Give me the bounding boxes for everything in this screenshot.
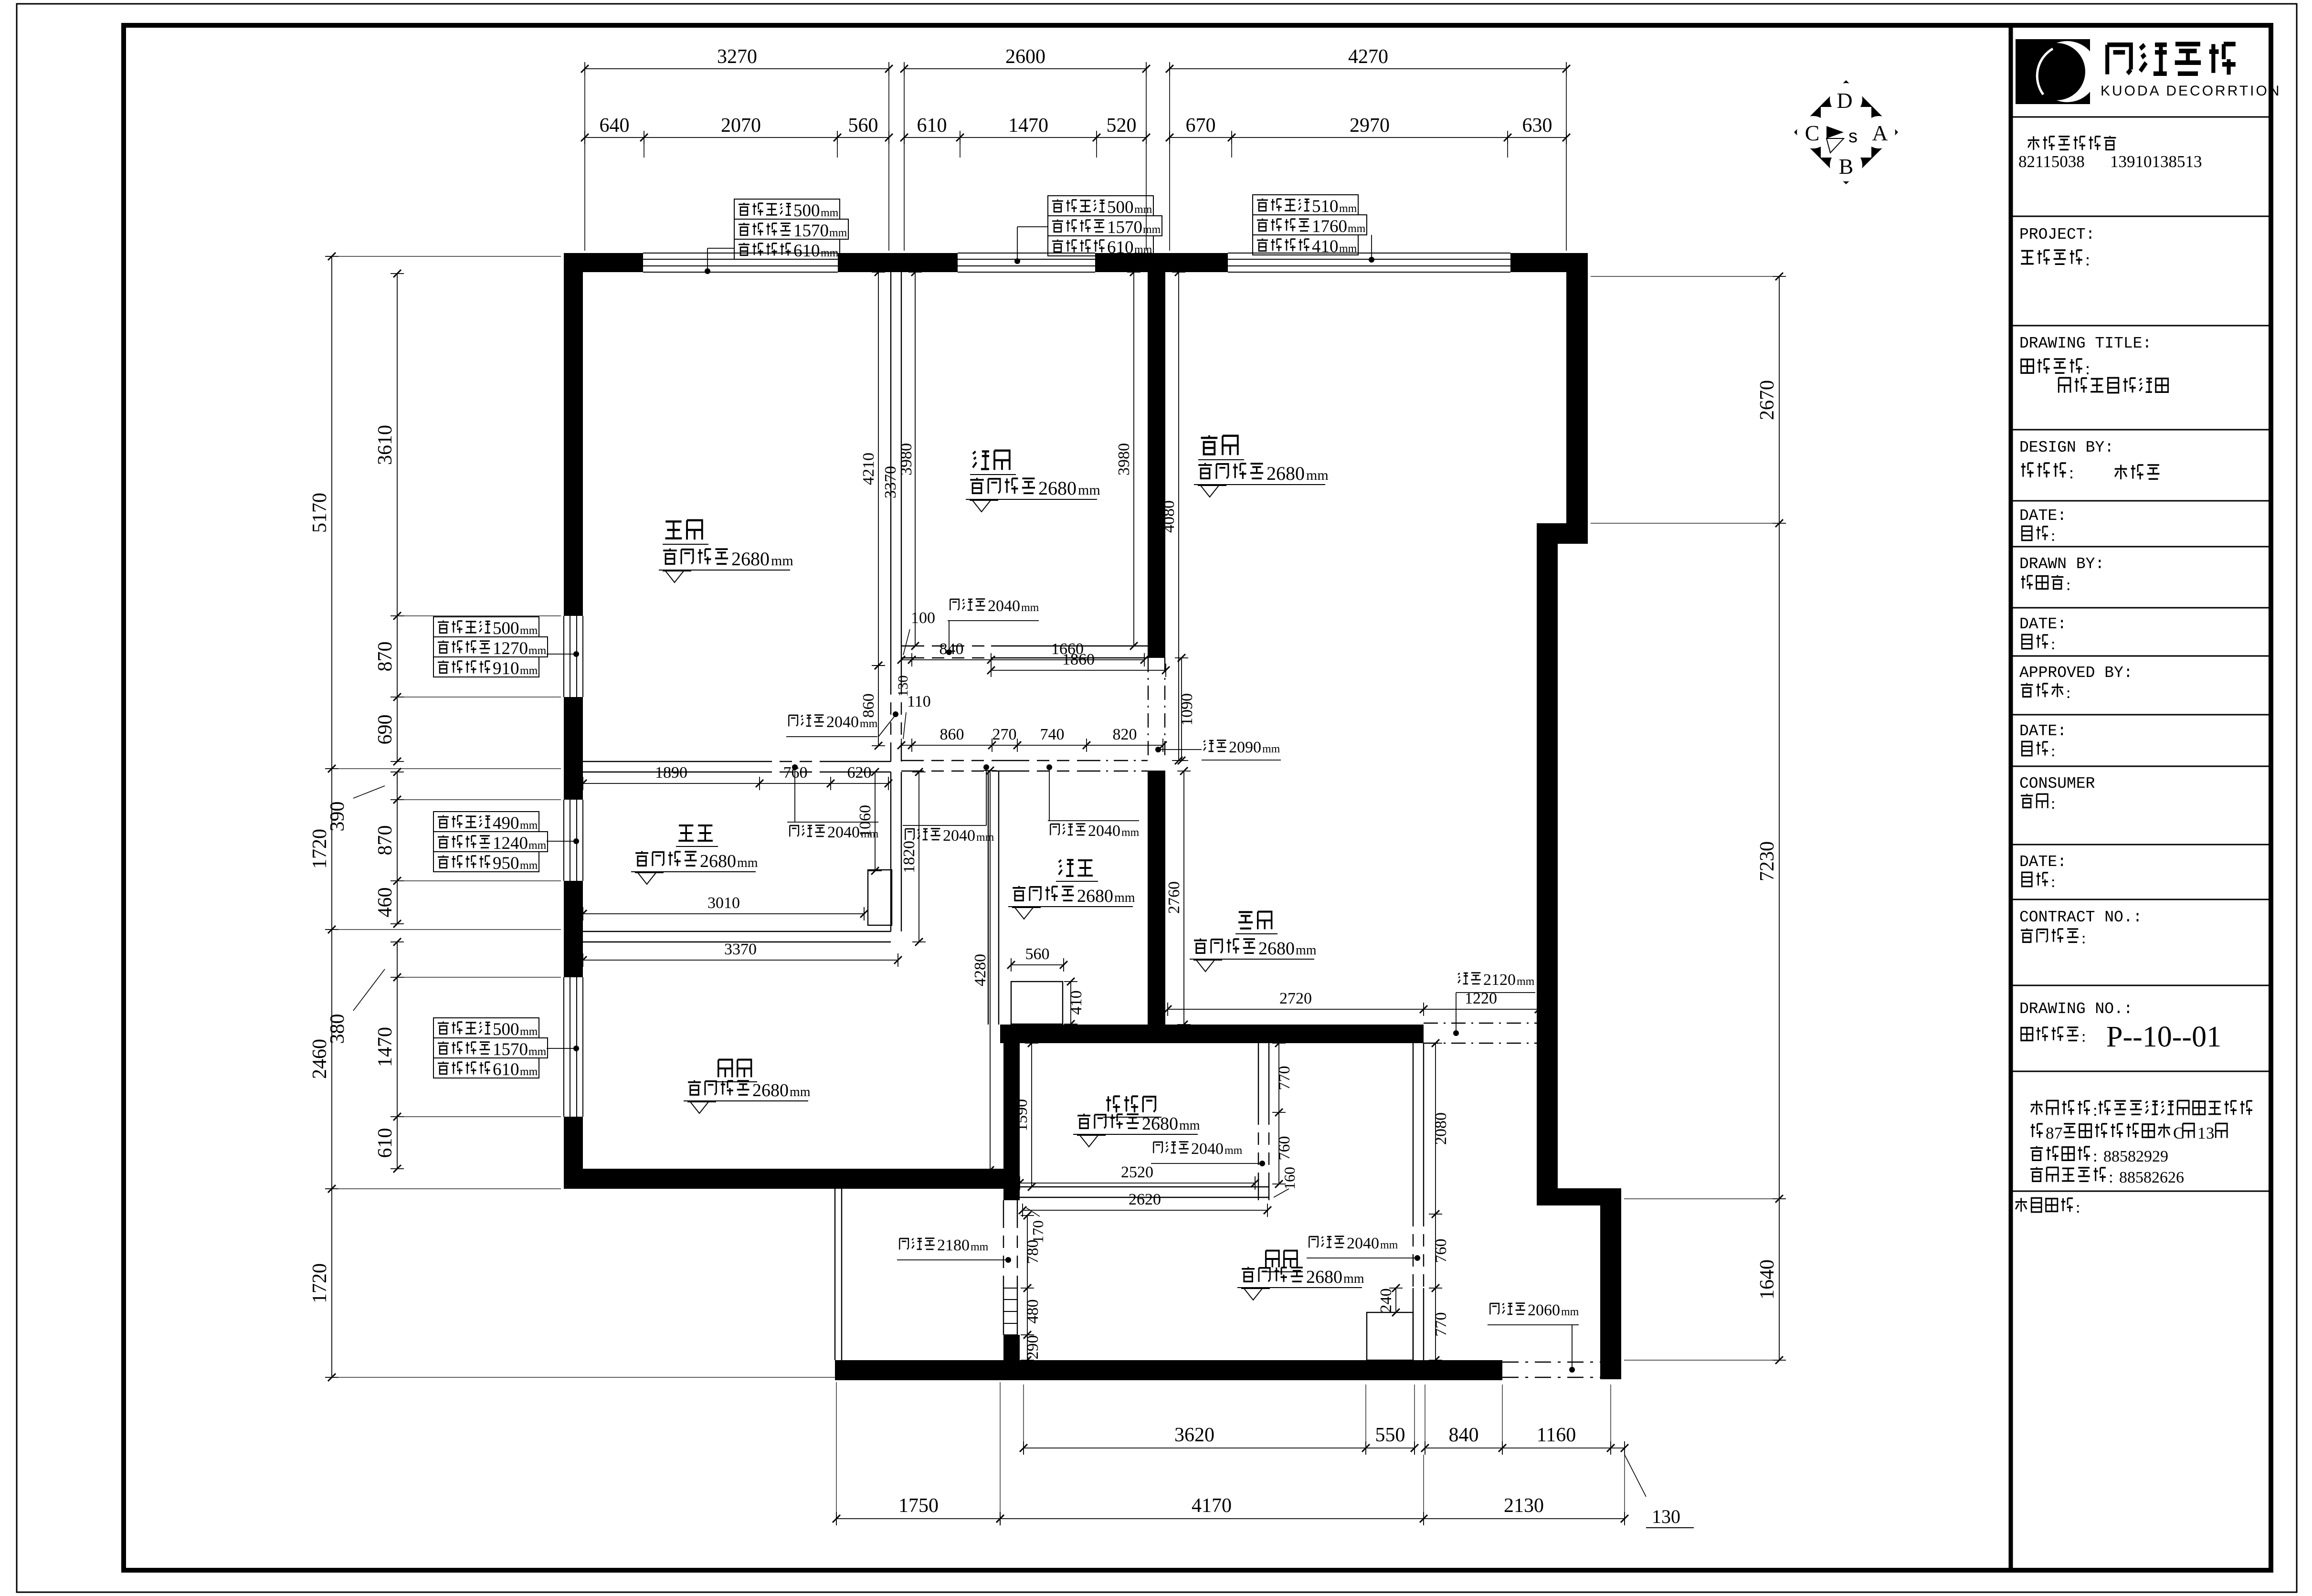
svg-text:C: C [1805, 121, 1820, 145]
svg-text:610: 610 [1107, 238, 1134, 257]
svg-text:1820: 1820 [900, 841, 918, 873]
svg-text:100: 100 [911, 609, 935, 627]
svg-text:7230: 7230 [1756, 841, 1778, 881]
svg-text:7: 7 [2054, 1124, 2063, 1142]
svg-text:mm: mm [520, 859, 538, 872]
svg-text:240: 240 [1377, 1289, 1395, 1313]
svg-text:620: 620 [847, 764, 872, 782]
svg-text:480: 480 [1024, 1300, 1042, 1324]
svg-text:mm: mm [520, 819, 538, 832]
svg-text:520: 520 [1107, 115, 1137, 137]
svg-text:840: 840 [940, 640, 964, 658]
svg-text:mm: mm [976, 831, 994, 844]
svg-text:mm: mm [1134, 203, 1152, 216]
svg-text:740: 740 [1040, 726, 1065, 743]
svg-text:690: 690 [374, 715, 396, 745]
svg-text:1090: 1090 [1178, 693, 1196, 726]
svg-text:2040: 2040 [943, 827, 975, 845]
svg-text:820: 820 [1113, 726, 1137, 743]
svg-text:mm: mm [528, 839, 547, 852]
svg-text:mm: mm [1114, 890, 1135, 905]
svg-text::: : [2093, 1147, 2098, 1165]
svg-text:270: 270 [992, 726, 1017, 743]
svg-text:1640: 1640 [1756, 1259, 1778, 1300]
svg-text::: : [2069, 463, 2074, 482]
svg-text:1890: 1890 [655, 764, 687, 782]
svg-text:13910138513: 13910138513 [2110, 152, 2202, 171]
svg-text:mm: mm [1339, 202, 1357, 215]
svg-text:2680: 2680 [1258, 939, 1295, 959]
svg-text:2760: 2760 [1165, 881, 1183, 914]
svg-text:88582626: 88582626 [2119, 1169, 2184, 1186]
svg-text:3620: 3620 [1174, 1424, 1214, 1446]
svg-text:mm: mm [520, 1025, 538, 1038]
svg-text:160: 160 [1281, 1167, 1298, 1190]
svg-text:500: 500 [793, 201, 820, 221]
svg-text:380: 380 [327, 1014, 348, 1044]
svg-text::: : [2081, 930, 2086, 947]
svg-text::: : [2085, 250, 2090, 269]
svg-text:CONTRACT NO.:: CONTRACT NO.: [2019, 909, 2142, 926]
svg-text:1570: 1570 [793, 221, 829, 241]
svg-text:mm: mm [1262, 743, 1280, 755]
svg-text:550: 550 [1375, 1424, 1405, 1446]
svg-text:510: 510 [1312, 197, 1339, 216]
svg-text::: : [2051, 527, 2055, 545]
svg-text:B: B [1839, 154, 1854, 179]
svg-text:870: 870 [374, 825, 396, 856]
svg-text:DATE:: DATE: [2019, 853, 2067, 871]
svg-text:APPROVED BY:: APPROVED BY: [2019, 664, 2133, 682]
svg-text:4270: 4270 [1348, 46, 1388, 68]
svg-text:560: 560 [848, 115, 878, 137]
svg-text:3: 3 [2206, 1124, 2215, 1142]
svg-text:410: 410 [1067, 991, 1085, 1015]
svg-text:D: D [1837, 88, 1852, 113]
svg-text:mm: mm [1306, 467, 1329, 483]
svg-text:2040: 2040 [1347, 1235, 1379, 1252]
svg-text:mm: mm [1296, 943, 1317, 958]
svg-text:760: 760 [1432, 1239, 1450, 1263]
svg-text:610: 610 [374, 1128, 396, 1158]
svg-text:2520: 2520 [1121, 1163, 1153, 1181]
svg-text:1750: 1750 [898, 1495, 939, 1517]
svg-text:2040: 2040 [1191, 1140, 1224, 1158]
svg-text:mm: mm [1339, 243, 1357, 255]
svg-text:2680: 2680 [1306, 1267, 1342, 1287]
svg-text:500: 500 [1107, 198, 1134, 217]
svg-text:2680: 2680 [1142, 1114, 1178, 1134]
svg-text:mm: mm [520, 624, 538, 637]
svg-text:3980: 3980 [897, 443, 915, 476]
svg-text:1570: 1570 [1107, 218, 1142, 237]
svg-text:PROJECT:: PROJECT: [2019, 226, 2095, 243]
svg-text:490: 490 [493, 814, 519, 833]
svg-text:2720: 2720 [1279, 990, 1312, 1007]
svg-text:88582929: 88582929 [2103, 1148, 2168, 1165]
svg-text:560: 560 [1025, 945, 1050, 963]
svg-text:mm: mm [1134, 243, 1152, 256]
svg-text:mm: mm [790, 1085, 811, 1099]
svg-text:2040: 2040 [827, 824, 860, 841]
svg-text:2680: 2680 [1038, 477, 1077, 499]
svg-text:P--10--01: P--10--01 [2106, 1021, 2221, 1053]
svg-text:2080: 2080 [1432, 1112, 1450, 1145]
svg-text:950: 950 [493, 854, 519, 873]
svg-text:2130: 2130 [1504, 1495, 1544, 1517]
svg-text:mm: mm [528, 645, 547, 657]
svg-text:460: 460 [374, 888, 396, 918]
svg-text:1590: 1590 [1013, 1099, 1031, 1131]
svg-text::: : [2051, 635, 2055, 653]
svg-text:4080: 4080 [1160, 500, 1178, 533]
svg-text:mm: mm [1078, 482, 1100, 498]
svg-text:3370: 3370 [724, 941, 757, 958]
svg-text:mm: mm [1225, 1144, 1243, 1157]
svg-text:2040: 2040 [988, 597, 1020, 615]
svg-text:670: 670 [1186, 115, 1216, 137]
svg-text::: : [2066, 576, 2070, 594]
svg-text:KUODA DECORRTION: KUODA DECORRTION [2101, 83, 2281, 99]
svg-text::: : [2081, 1028, 2086, 1046]
svg-text:DRAWING NO.:: DRAWING NO.: [2019, 1000, 2133, 1018]
svg-text:1240: 1240 [493, 834, 528, 853]
svg-text:2600: 2600 [1005, 46, 1045, 68]
svg-text:mm: mm [821, 247, 839, 259]
svg-text:840: 840 [1449, 1424, 1479, 1446]
svg-text:4280: 4280 [971, 954, 989, 986]
svg-text:2970: 2970 [1350, 115, 1390, 137]
svg-text:3370: 3370 [882, 466, 899, 498]
svg-text:2120: 2120 [1483, 971, 1516, 989]
svg-text:1270: 1270 [493, 639, 528, 658]
svg-text:mm: mm [861, 828, 879, 840]
svg-text:2460: 2460 [309, 1039, 331, 1079]
svg-text:mm: mm [1179, 1118, 1200, 1133]
svg-text:2040: 2040 [826, 713, 859, 731]
svg-text:mm: mm [860, 718, 878, 730]
svg-text:1470: 1470 [374, 1027, 396, 1067]
svg-text:770: 770 [1432, 1312, 1450, 1337]
svg-text:DATE:: DATE: [2019, 615, 2067, 633]
svg-text:mm: mm [1348, 222, 1366, 235]
svg-text:1720: 1720 [309, 1263, 331, 1303]
svg-text:1760: 1760 [1312, 217, 1347, 236]
svg-text:mm: mm [528, 1046, 547, 1058]
svg-text:DATE:: DATE: [2019, 507, 2067, 525]
svg-text:780: 780 [1024, 1240, 1042, 1264]
svg-text::: : [2066, 684, 2070, 702]
svg-text:130: 130 [1652, 1506, 1680, 1527]
svg-text::: : [2051, 742, 2055, 760]
svg-text:630: 630 [1522, 115, 1552, 137]
svg-text:1570: 1570 [493, 1040, 528, 1059]
svg-text:DESIGN BY:: DESIGN BY: [2019, 439, 2114, 456]
svg-text:2680: 2680 [700, 851, 736, 871]
svg-text:2090: 2090 [1229, 739, 1261, 756]
svg-text:82115038: 82115038 [2018, 152, 2085, 171]
svg-text:2620: 2620 [1129, 1191, 1161, 1208]
svg-text:mm: mm [829, 227, 847, 239]
svg-text:s: s [1848, 127, 1858, 147]
svg-text::: : [2051, 795, 2055, 813]
svg-text:1470: 1470 [1008, 115, 1048, 137]
svg-text:1720: 1720 [309, 829, 331, 869]
svg-text:1860: 1860 [1062, 651, 1095, 668]
svg-text:610: 610 [793, 241, 820, 261]
svg-text:mm: mm [1021, 602, 1039, 614]
svg-text:mm: mm [1517, 975, 1535, 988]
svg-text:mm: mm [1343, 1271, 1364, 1286]
svg-text::: : [2109, 1168, 2113, 1186]
svg-text:A: A [1872, 121, 1888, 145]
svg-text::: : [2085, 359, 2090, 378]
svg-text:290: 290 [1024, 1335, 1042, 1360]
svg-text:870: 870 [374, 642, 396, 672]
svg-text:mm: mm [771, 553, 793, 569]
svg-text:2680: 2680 [1267, 463, 1305, 484]
svg-text:1: 1 [2197, 1124, 2206, 1142]
svg-text:2040: 2040 [1088, 822, 1120, 840]
svg-text:mm: mm [737, 856, 758, 870]
svg-text:mm: mm [520, 1066, 538, 1078]
svg-text:860: 860 [860, 694, 877, 718]
svg-text:130: 130 [895, 676, 911, 697]
svg-text:mm: mm [1143, 223, 1161, 236]
svg-text::: : [2076, 1199, 2080, 1216]
svg-text:770: 770 [1276, 1066, 1293, 1090]
svg-text:910: 910 [493, 659, 519, 678]
svg-text:mm: mm [1121, 826, 1140, 839]
svg-text:2680: 2680 [731, 548, 770, 570]
svg-text:DATE:: DATE: [2019, 722, 2067, 740]
svg-text:500: 500 [493, 619, 519, 638]
svg-text:2670: 2670 [1756, 380, 1778, 420]
svg-text:DRAWN BY:: DRAWN BY: [2019, 555, 2104, 573]
svg-text:4210: 4210 [860, 453, 877, 485]
svg-text:2680: 2680 [752, 1080, 789, 1100]
svg-text:3610: 3610 [374, 425, 396, 465]
svg-text:500: 500 [493, 1020, 519, 1039]
svg-text:2180: 2180 [937, 1237, 970, 1254]
svg-text:410: 410 [1312, 237, 1339, 256]
svg-text:2070: 2070 [721, 115, 761, 137]
svg-text:mm: mm [1561, 1306, 1579, 1318]
svg-text:610: 610 [917, 115, 947, 137]
svg-text:3010: 3010 [707, 894, 740, 912]
svg-text:5170: 5170 [309, 493, 331, 533]
svg-text:610: 610 [493, 1060, 519, 1079]
svg-text::: : [2051, 873, 2055, 891]
svg-text:2680: 2680 [1077, 886, 1113, 906]
svg-text::: : [2093, 1101, 2098, 1120]
svg-text:3980: 3980 [1115, 443, 1133, 476]
svg-text:640: 640 [600, 115, 630, 137]
svg-text:mm: mm [821, 207, 839, 219]
svg-text:4170: 4170 [1192, 1495, 1232, 1517]
svg-text:2060: 2060 [1528, 1301, 1560, 1319]
svg-text:CONSUMER: CONSUMER [2019, 775, 2095, 793]
svg-text:390: 390 [327, 802, 348, 832]
svg-text:760: 760 [1276, 1136, 1293, 1161]
svg-text:3270: 3270 [717, 46, 757, 68]
svg-text:mm: mm [1380, 1239, 1398, 1251]
svg-text:mm: mm [520, 665, 538, 677]
svg-text:8: 8 [2046, 1124, 2054, 1142]
svg-text:DRAWING TITLE:: DRAWING TITLE: [2019, 335, 2152, 352]
svg-text:1160: 1160 [1537, 1424, 1576, 1446]
svg-text:mm: mm [971, 1241, 989, 1253]
svg-text:860: 860 [940, 726, 964, 743]
